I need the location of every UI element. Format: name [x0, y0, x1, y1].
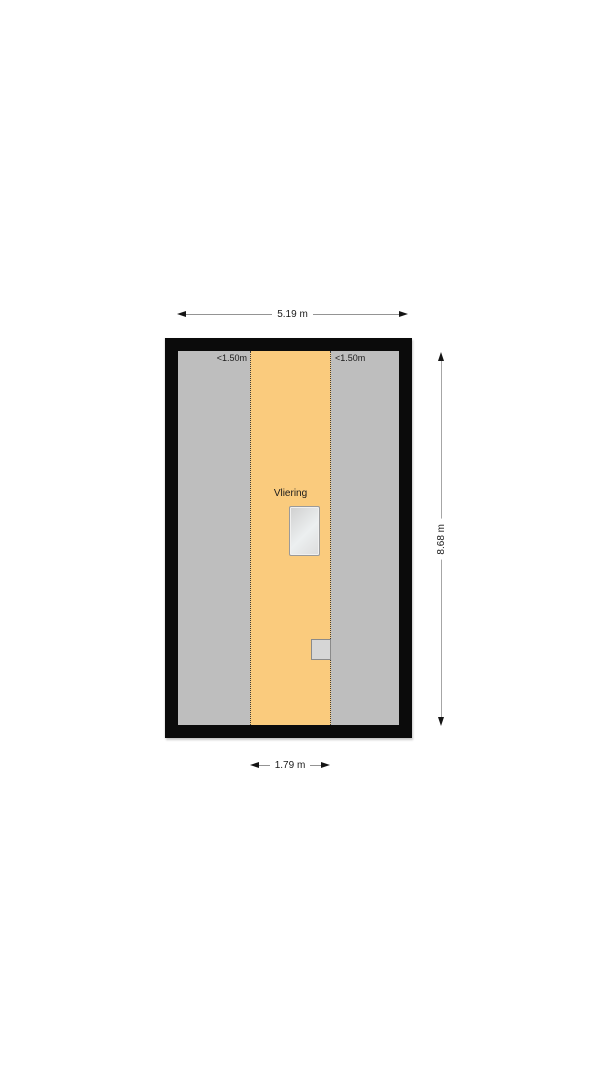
- dimension-height: 8.68 m: [435, 352, 448, 726]
- arrow-up-icon: [438, 352, 444, 361]
- floorplan-canvas: 5.19 m <1.50m <1.50m Vliering 8.68 m 1.7…: [0, 0, 607, 1080]
- dimension-height-label: 8.68 m: [436, 519, 447, 560]
- arrow-down-icon: [438, 717, 444, 726]
- fixture-block: [311, 639, 331, 660]
- headroom-label-left: <1.50m: [178, 353, 247, 364]
- roof-window: [289, 506, 320, 556]
- arrow-left-icon: [177, 311, 186, 317]
- dimension-strip-width: 1.79 m: [250, 759, 330, 772]
- room-label: Vliering: [251, 488, 330, 499]
- dimension-width-label: 5.19 m: [272, 308, 313, 321]
- plan-walls: <1.50m <1.50m Vliering: [165, 338, 412, 738]
- dimension-width: 5.19 m: [177, 308, 408, 321]
- dimension-strip-width-label: 1.79 m: [270, 759, 311, 772]
- arrow-right-icon: [399, 311, 408, 317]
- arrow-left-icon: [250, 762, 259, 768]
- arrow-right-icon: [321, 762, 330, 768]
- headroom-label-right: <1.50m: [335, 353, 365, 364]
- floor-area-low-headroom: <1.50m <1.50m Vliering: [178, 351, 399, 725]
